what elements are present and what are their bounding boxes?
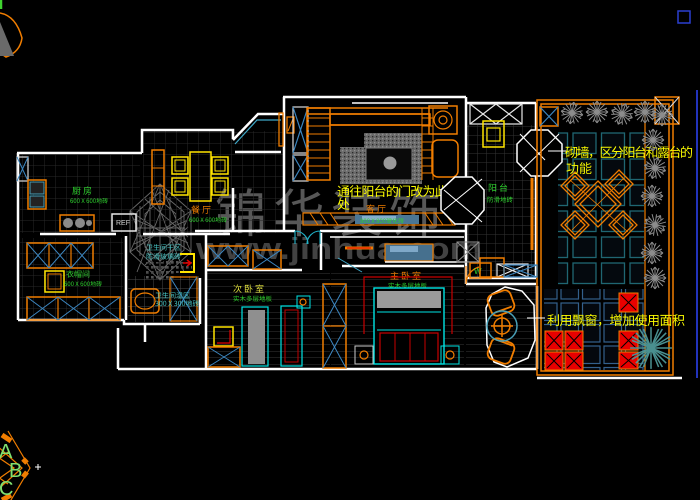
svg-text:REF: REF (116, 220, 130, 227)
svg-text:W: W (474, 267, 482, 276)
svg-text:C: C (0, 478, 13, 500)
